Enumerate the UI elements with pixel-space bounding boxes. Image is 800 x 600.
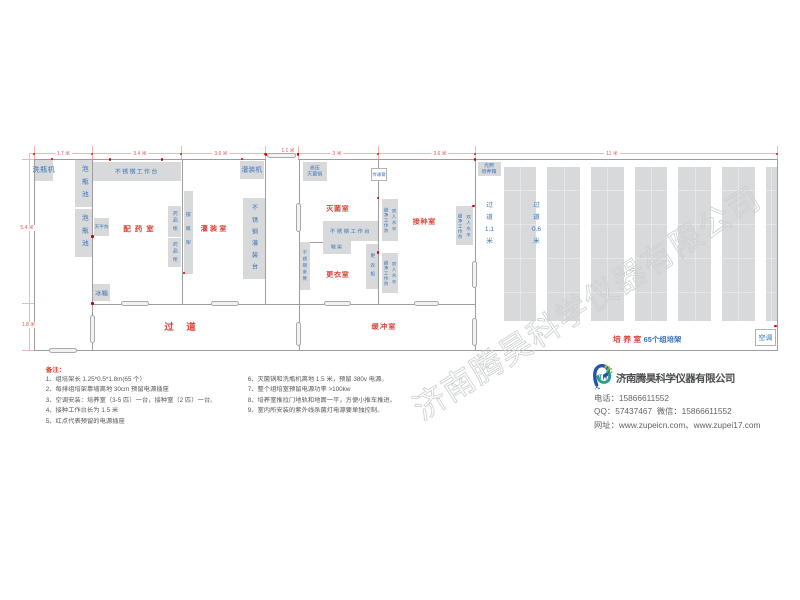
- svg-text:H: H: [603, 376, 607, 382]
